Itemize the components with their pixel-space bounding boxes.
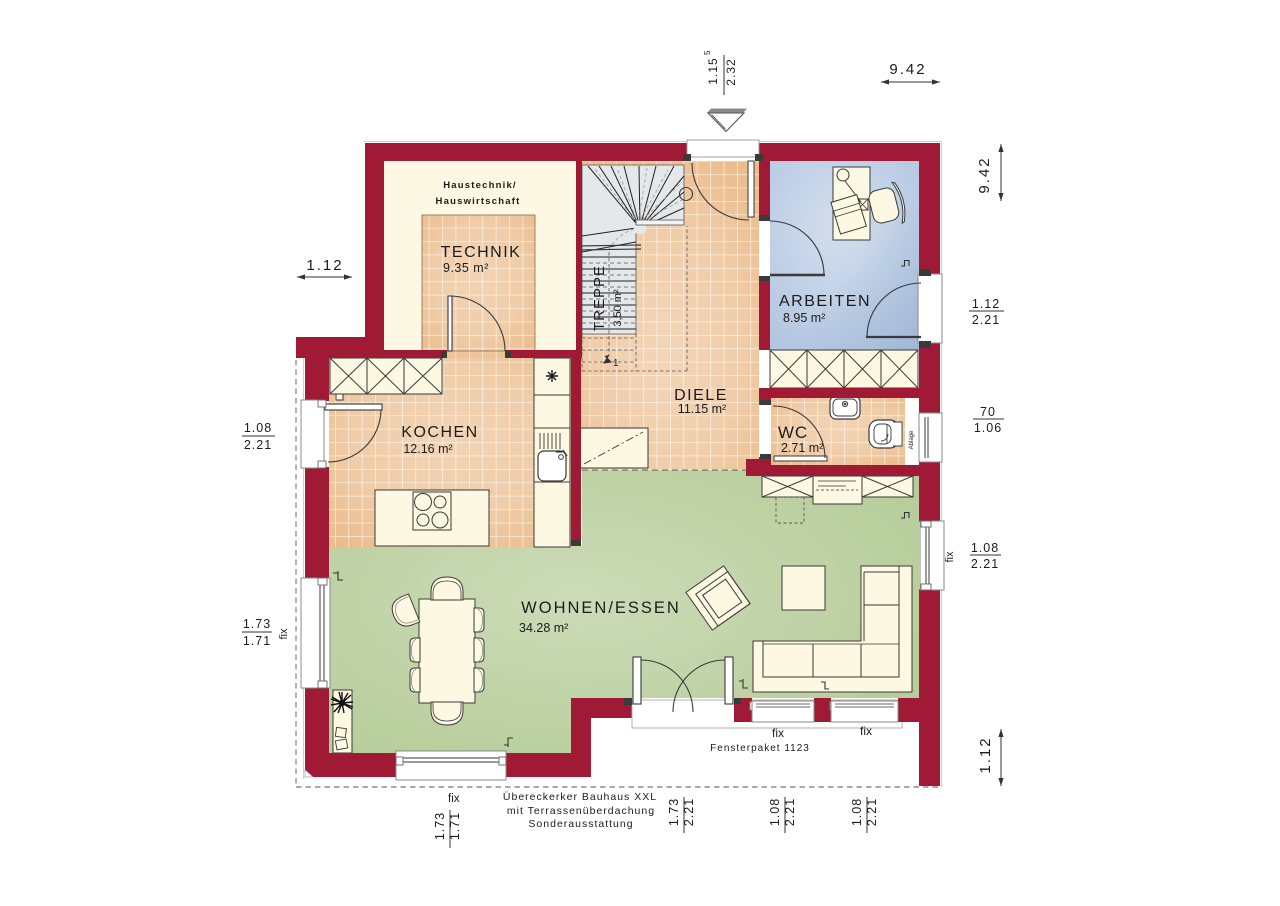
svg-text:Hauswirtschaft: Hauswirtschaft	[436, 196, 521, 207]
svg-text:mit Terrassenüberdachung: mit Terrassenüberdachung	[507, 805, 655, 817]
svg-text:12.16 m²: 12.16 m²	[403, 442, 452, 456]
svg-text:TECHNIK: TECHNIK	[441, 244, 522, 261]
svg-text:9.35 m²: 9.35 m²	[443, 261, 489, 275]
svg-text:1.15: 1.15	[706, 57, 720, 84]
svg-text:Sonderausstattung: Sonderausstattung	[528, 818, 633, 830]
svg-text:KOCHEN: KOCHEN	[401, 424, 478, 441]
svg-text:2.21: 2.21	[682, 798, 696, 826]
svg-text:9.42: 9.42	[976, 156, 993, 193]
svg-text:fix: fix	[772, 726, 784, 740]
svg-text:70: 70	[980, 405, 996, 419]
svg-text:1.08: 1.08	[768, 798, 782, 826]
svg-text:Übereckerker Bauhaus XXL: Übereckerker Bauhaus XXL	[503, 791, 657, 803]
svg-text:1.71: 1.71	[243, 634, 271, 648]
svg-text:2.32: 2.32	[724, 58, 738, 85]
svg-text:9.42: 9.42	[889, 61, 926, 78]
svg-text:TREPPE: TREPPE	[591, 265, 608, 331]
svg-text:11.15 m²: 11.15 m²	[678, 402, 726, 416]
svg-text:1.06: 1.06	[974, 421, 1002, 435]
svg-text:5: 5	[703, 50, 712, 55]
svg-text:1.08: 1.08	[244, 421, 272, 435]
svg-text:2.71 m²: 2.71 m²	[781, 441, 823, 455]
svg-text:34.28 m²: 34.28 m²	[519, 621, 568, 635]
svg-text:WOHNEN/ESSEN: WOHNEN/ESSEN	[521, 599, 681, 617]
svg-text:1.12: 1.12	[977, 736, 994, 773]
svg-text:2.21: 2.21	[865, 798, 879, 826]
svg-text:1.12: 1.12	[972, 297, 1000, 311]
svg-text:WC: WC	[778, 423, 808, 442]
svg-text:2.21: 2.21	[783, 798, 797, 826]
svg-text:ARBEITEN: ARBEITEN	[779, 293, 871, 310]
svg-text:2.21: 2.21	[244, 438, 272, 452]
svg-text:Fensterpaket 1123: Fensterpaket 1123	[710, 743, 810, 754]
svg-text:Haustechnik/: Haustechnik/	[443, 180, 517, 191]
svg-text:1: 1	[613, 358, 619, 369]
svg-text:1.73: 1.73	[433, 812, 447, 840]
svg-text:1.73: 1.73	[667, 798, 681, 826]
svg-text:fix: fix	[448, 793, 460, 805]
svg-text:3,50 m²: 3,50 m²	[612, 289, 624, 327]
svg-text:1.71: 1.71	[448, 812, 462, 840]
svg-text:8.95 m²: 8.95 m²	[783, 311, 825, 325]
svg-text:1.08: 1.08	[850, 798, 864, 826]
svg-text:1.12: 1.12	[306, 257, 343, 274]
svg-text:fix: fix	[944, 551, 956, 563]
svg-text:fix: fix	[860, 724, 872, 738]
svg-text:1.08: 1.08	[971, 541, 999, 555]
svg-text:Ablage: Ablage	[909, 430, 915, 449]
svg-text:2.21: 2.21	[972, 313, 1000, 327]
svg-text:1.73: 1.73	[243, 617, 271, 631]
svg-text:2.21: 2.21	[971, 557, 999, 571]
svg-text:fix: fix	[278, 628, 290, 640]
